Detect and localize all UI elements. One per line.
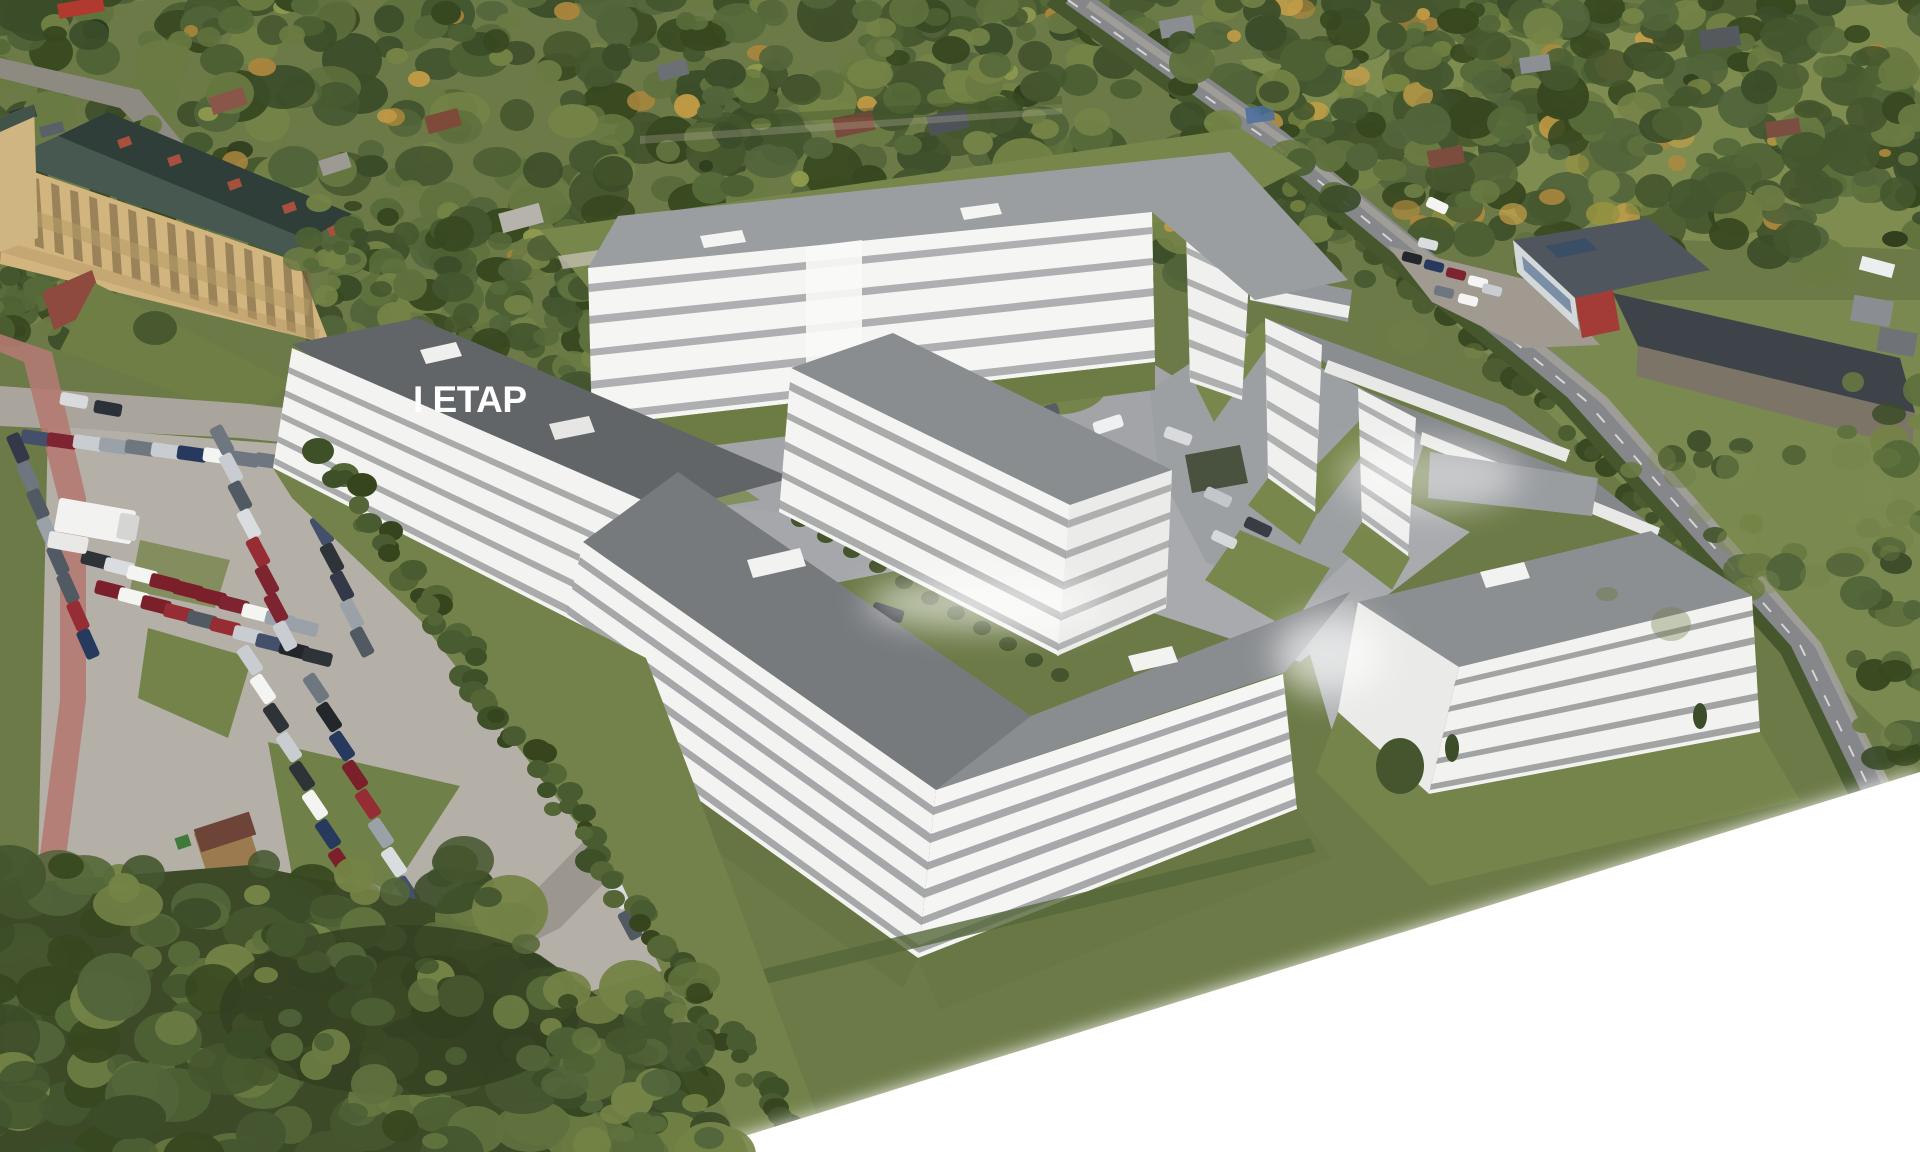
svg-text:I ETAP: I ETAP [413,379,527,420]
